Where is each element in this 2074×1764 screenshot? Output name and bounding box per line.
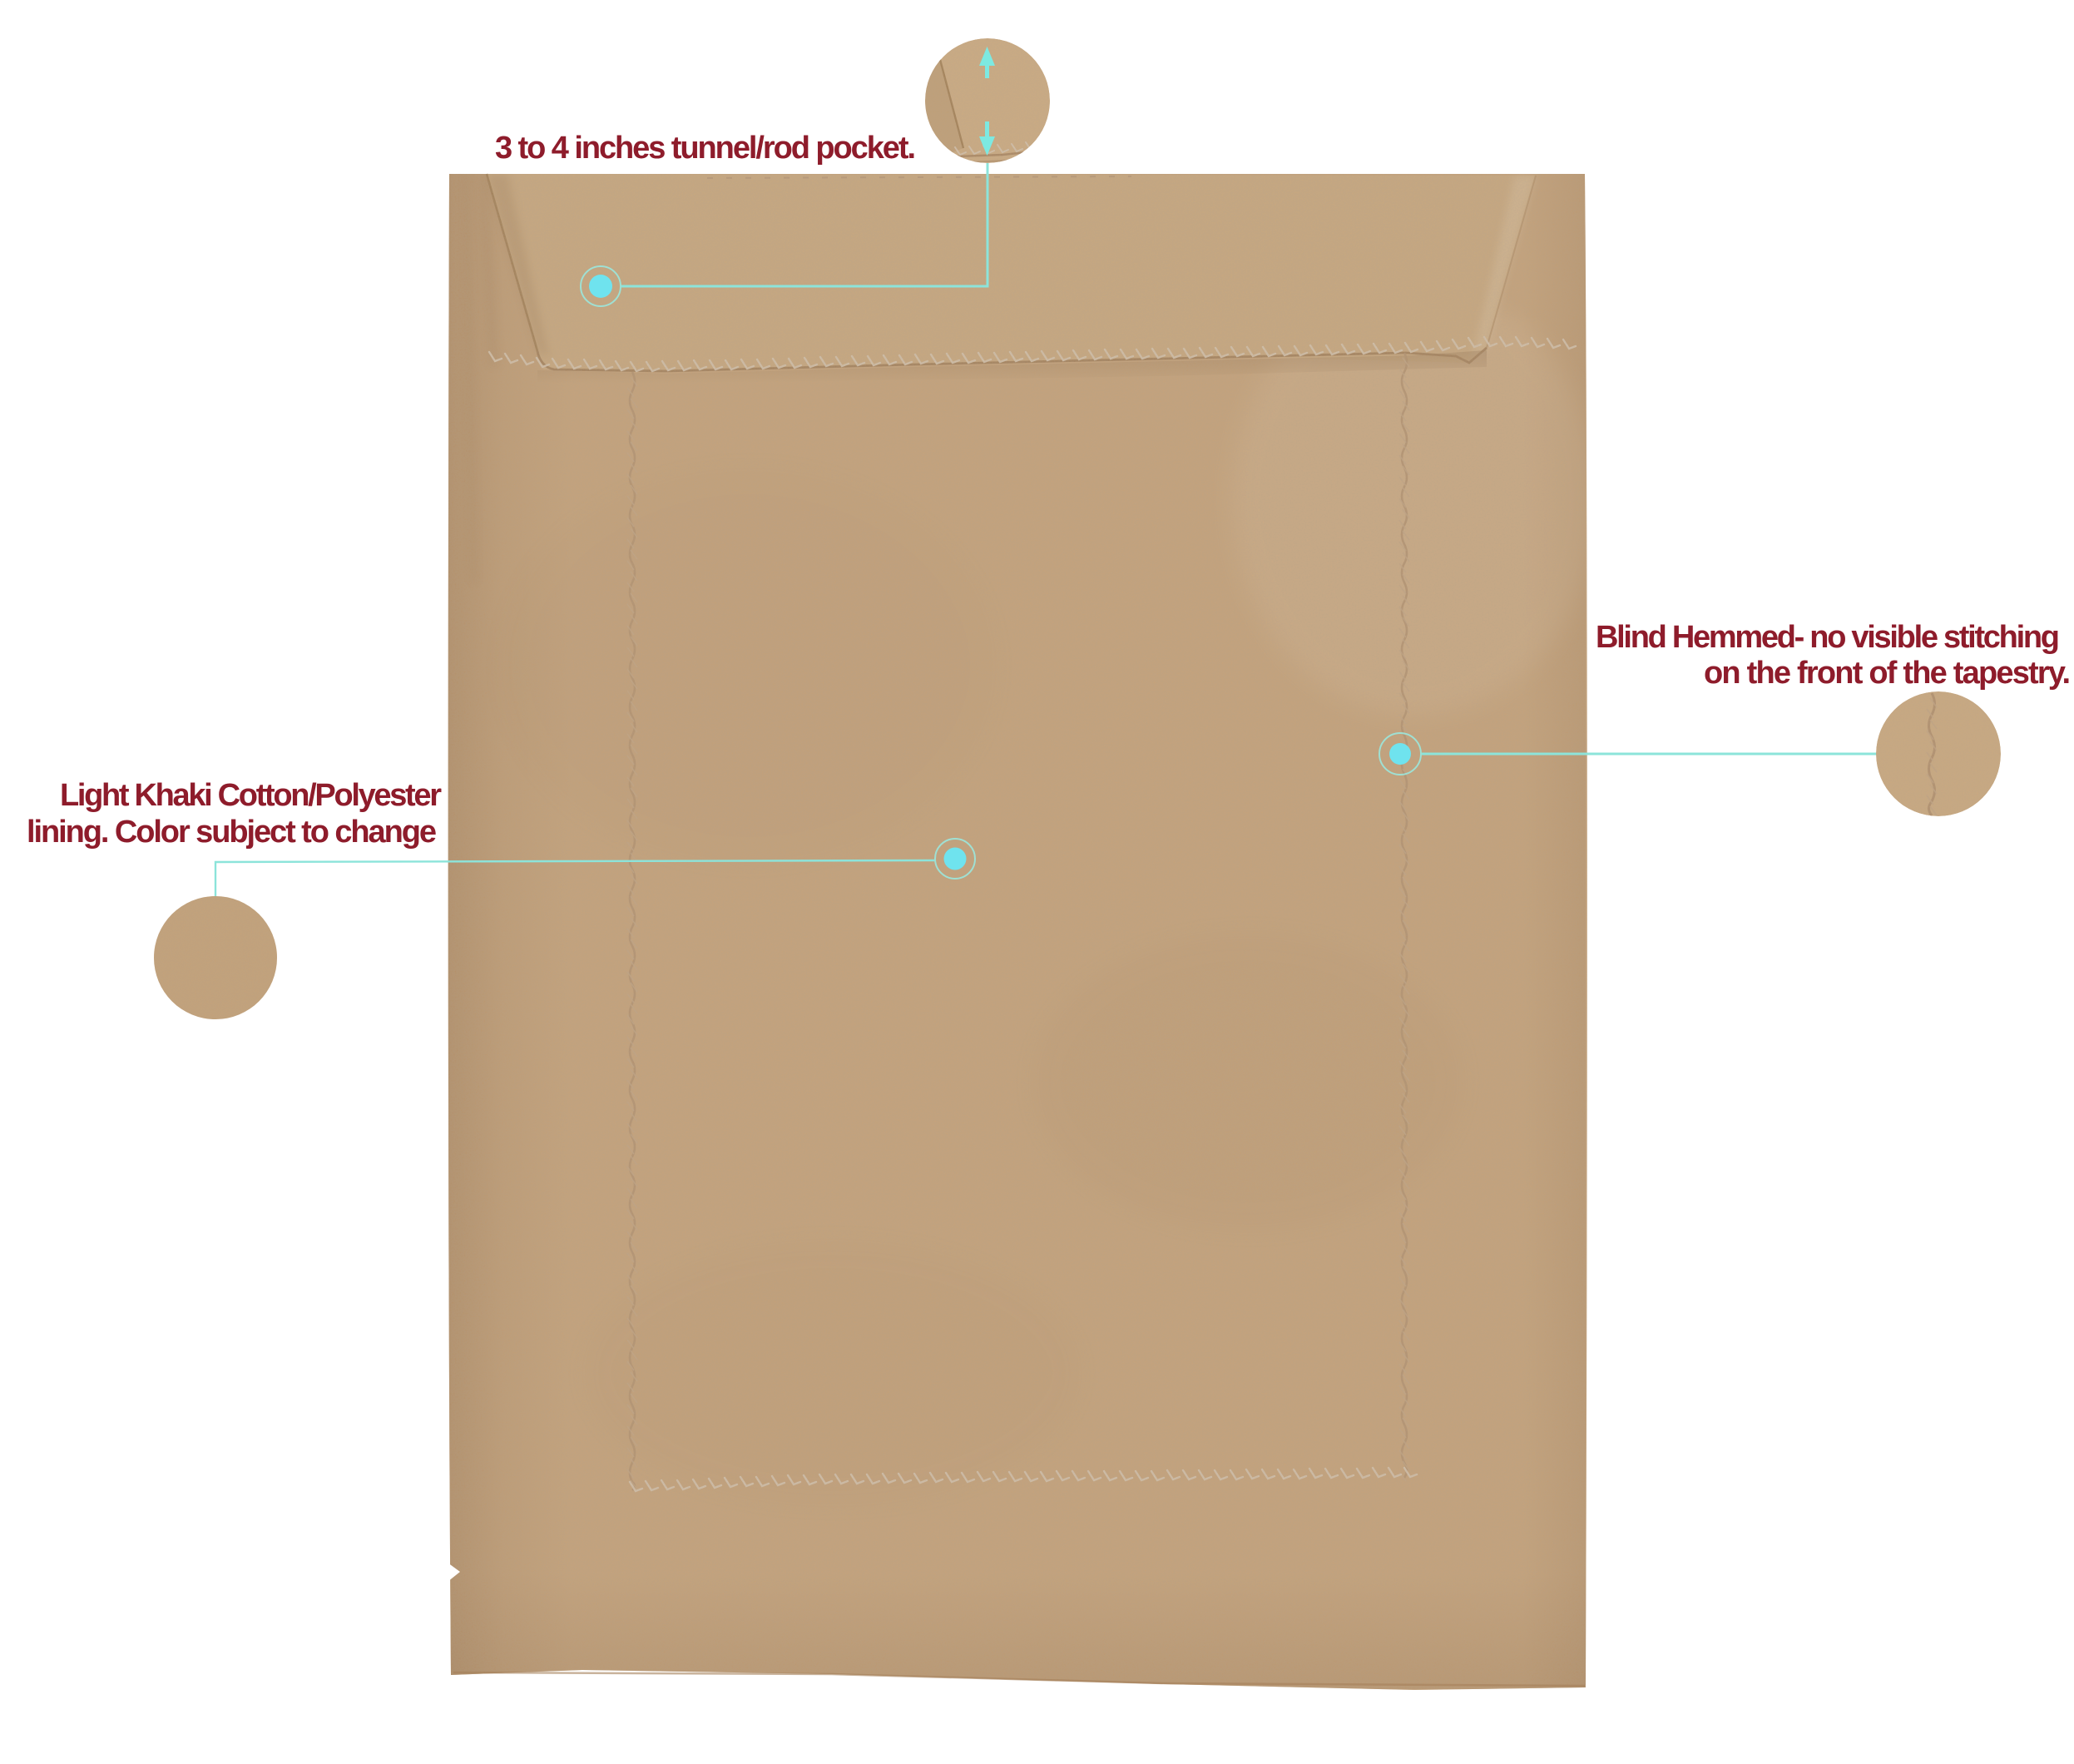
- svg-text:Light Khaki Cotton/Polyester: Light Khaki Cotton/Polyester: [60, 778, 442, 813]
- svg-text:on the front of the tapestry.: on the front of the tapestry.: [1704, 656, 2071, 691]
- svg-text:3 to 4 inches tunnel/rod pocke: 3 to 4 inches tunnel/rod pocket.: [495, 131, 916, 166]
- svg-text:lining. Color subject to chang: lining. Color subject to change: [27, 815, 437, 850]
- svg-text:Blind Hemmed- no visible stitc: Blind Hemmed- no visible stitching: [1596, 620, 2060, 655]
